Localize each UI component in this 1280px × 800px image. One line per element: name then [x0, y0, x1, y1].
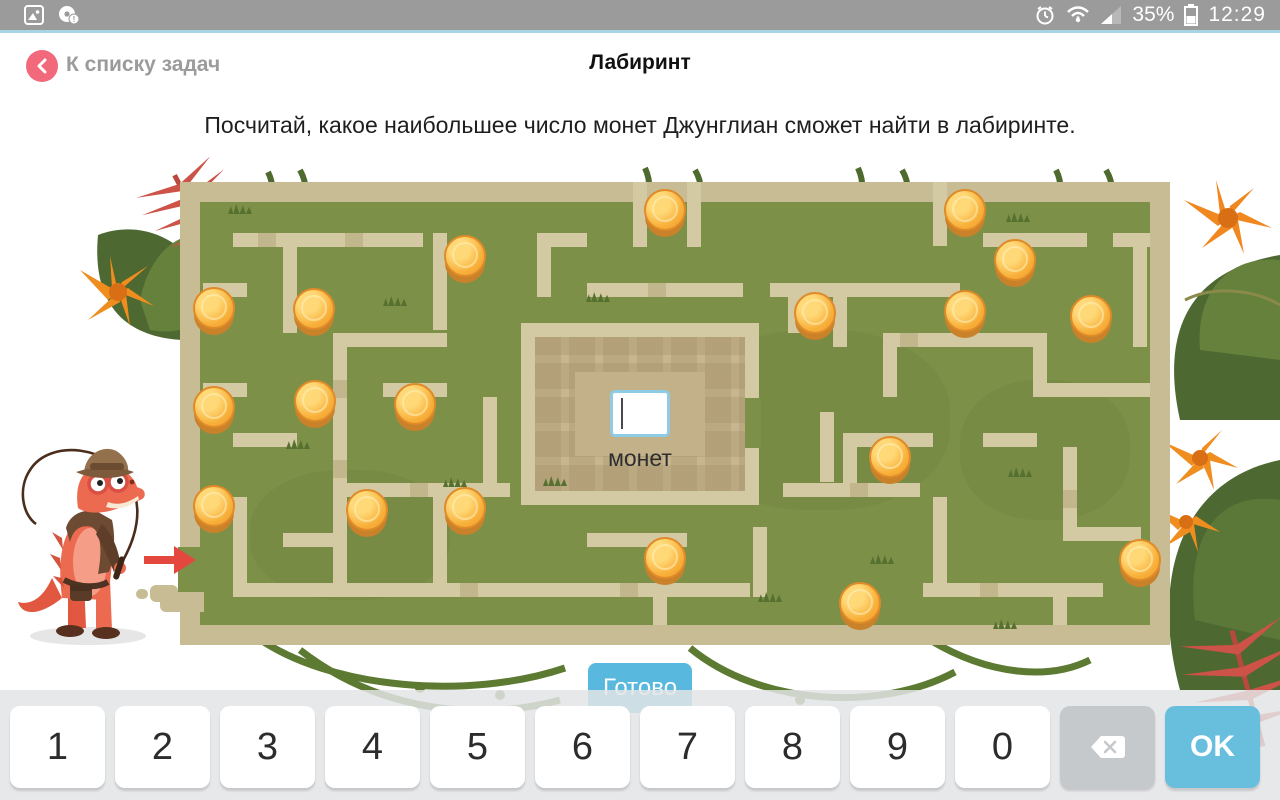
maze-wall-seam — [900, 333, 918, 347]
coin-icon — [394, 383, 436, 425]
coin-count-field[interactable] — [610, 390, 670, 437]
key-5[interactable]: 5 — [430, 706, 525, 788]
maze-wall — [687, 182, 701, 247]
maze-wall — [233, 583, 750, 597]
maze-frame — [180, 625, 1170, 645]
numeric-keyboard: 1234567890OK — [0, 690, 1280, 800]
maze-wall — [983, 433, 1037, 447]
maze-wall — [1047, 383, 1150, 397]
coin-icon — [346, 489, 388, 531]
maze-wall — [753, 527, 767, 597]
coin-icon — [193, 386, 235, 428]
battery-icon — [1184, 4, 1198, 26]
keyboard-keys: 1234567890OK — [10, 706, 1260, 788]
plaza-opening — [745, 398, 761, 448]
coin-icon — [644, 537, 686, 579]
backspace-icon — [1090, 734, 1126, 760]
coin-icon — [839, 582, 881, 624]
maze-wall-seam — [850, 483, 868, 497]
coin-icon — [994, 239, 1036, 281]
coin-icon — [869, 436, 911, 478]
maze-wall — [933, 497, 947, 583]
maze-wall — [333, 433, 347, 583]
maze-wall — [233, 497, 247, 583]
page-title: Лабиринт — [0, 51, 1280, 75]
svg-text:!: ! — [73, 15, 76, 24]
coin-icon — [193, 287, 235, 329]
key-1[interactable]: 1 — [10, 706, 105, 788]
maze-wall-seam — [410, 483, 428, 497]
maze-wall-seam — [1063, 490, 1077, 508]
coin-icon — [644, 189, 686, 231]
maze-wall — [333, 333, 447, 347]
maze-wall-seam — [333, 460, 347, 478]
app-screen: монет — [0, 0, 1280, 800]
jungle-explorer-character — [10, 430, 170, 650]
maze-wall — [1113, 233, 1150, 247]
coin-icon — [444, 487, 486, 529]
key-6[interactable]: 6 — [535, 706, 630, 788]
header: К списку задач Лабиринт — [0, 33, 1280, 95]
key-7[interactable]: 7 — [640, 706, 735, 788]
coin-icon — [293, 288, 335, 330]
key-2[interactable]: 2 — [115, 706, 210, 788]
ground-shade — [960, 380, 1130, 520]
maze-wall-seam — [980, 583, 998, 597]
maze-wall — [537, 247, 551, 297]
maze-wall — [1133, 247, 1147, 347]
maze-wall — [233, 433, 297, 447]
maze-wall — [1053, 597, 1067, 625]
coin-icon — [294, 380, 336, 422]
coin-icon — [944, 189, 986, 231]
key-8[interactable]: 8 — [745, 706, 840, 788]
maze-wall — [833, 297, 847, 347]
wifi-icon — [1066, 5, 1090, 25]
backspace-icon[interactable] — [1060, 706, 1155, 788]
key-9[interactable]: 9 — [850, 706, 945, 788]
maze-wall — [483, 397, 497, 483]
maze-wall-seam — [648, 283, 666, 297]
maze-wall — [1033, 333, 1047, 397]
disc-alert-icon: ! — [58, 5, 80, 25]
maze-wall — [653, 597, 667, 625]
maze-wall-seam — [258, 233, 276, 247]
maze-wall — [537, 233, 587, 247]
maze-wall — [820, 412, 834, 482]
coin-icon — [1119, 539, 1161, 581]
coin-icon — [1070, 295, 1112, 337]
status-accent-line — [0, 30, 1280, 33]
maze-wall — [883, 347, 897, 397]
ok-key[interactable]: OK — [1165, 706, 1260, 788]
maze-wall — [283, 247, 297, 333]
task-text: Посчитай, какое наибольшее число монет Д… — [0, 112, 1280, 139]
alarm-icon — [1034, 4, 1056, 26]
signal-icon — [1100, 5, 1122, 25]
battery-percent: 35% — [1132, 3, 1174, 27]
clock: 12:29 — [1208, 3, 1266, 27]
coin-input-label: монет — [540, 445, 740, 472]
key-3[interactable]: 3 — [220, 706, 315, 788]
maze-wall — [923, 583, 1103, 597]
key-0[interactable]: 0 — [955, 706, 1050, 788]
maze-wall-seam — [345, 233, 363, 247]
coin-icon — [794, 292, 836, 334]
status-bar: ! 35% — [0, 0, 1280, 30]
coin-icon — [944, 290, 986, 332]
key-4[interactable]: 4 — [325, 706, 420, 788]
gallery-icon — [24, 5, 44, 25]
coin-count-input[interactable] — [610, 390, 670, 437]
text-caret — [621, 398, 623, 429]
coin-icon — [444, 235, 486, 277]
coin-icon — [193, 485, 235, 527]
maze-wall — [1077, 527, 1141, 541]
maze-wall-seam — [620, 583, 638, 597]
maze-wall-seam — [460, 583, 478, 597]
